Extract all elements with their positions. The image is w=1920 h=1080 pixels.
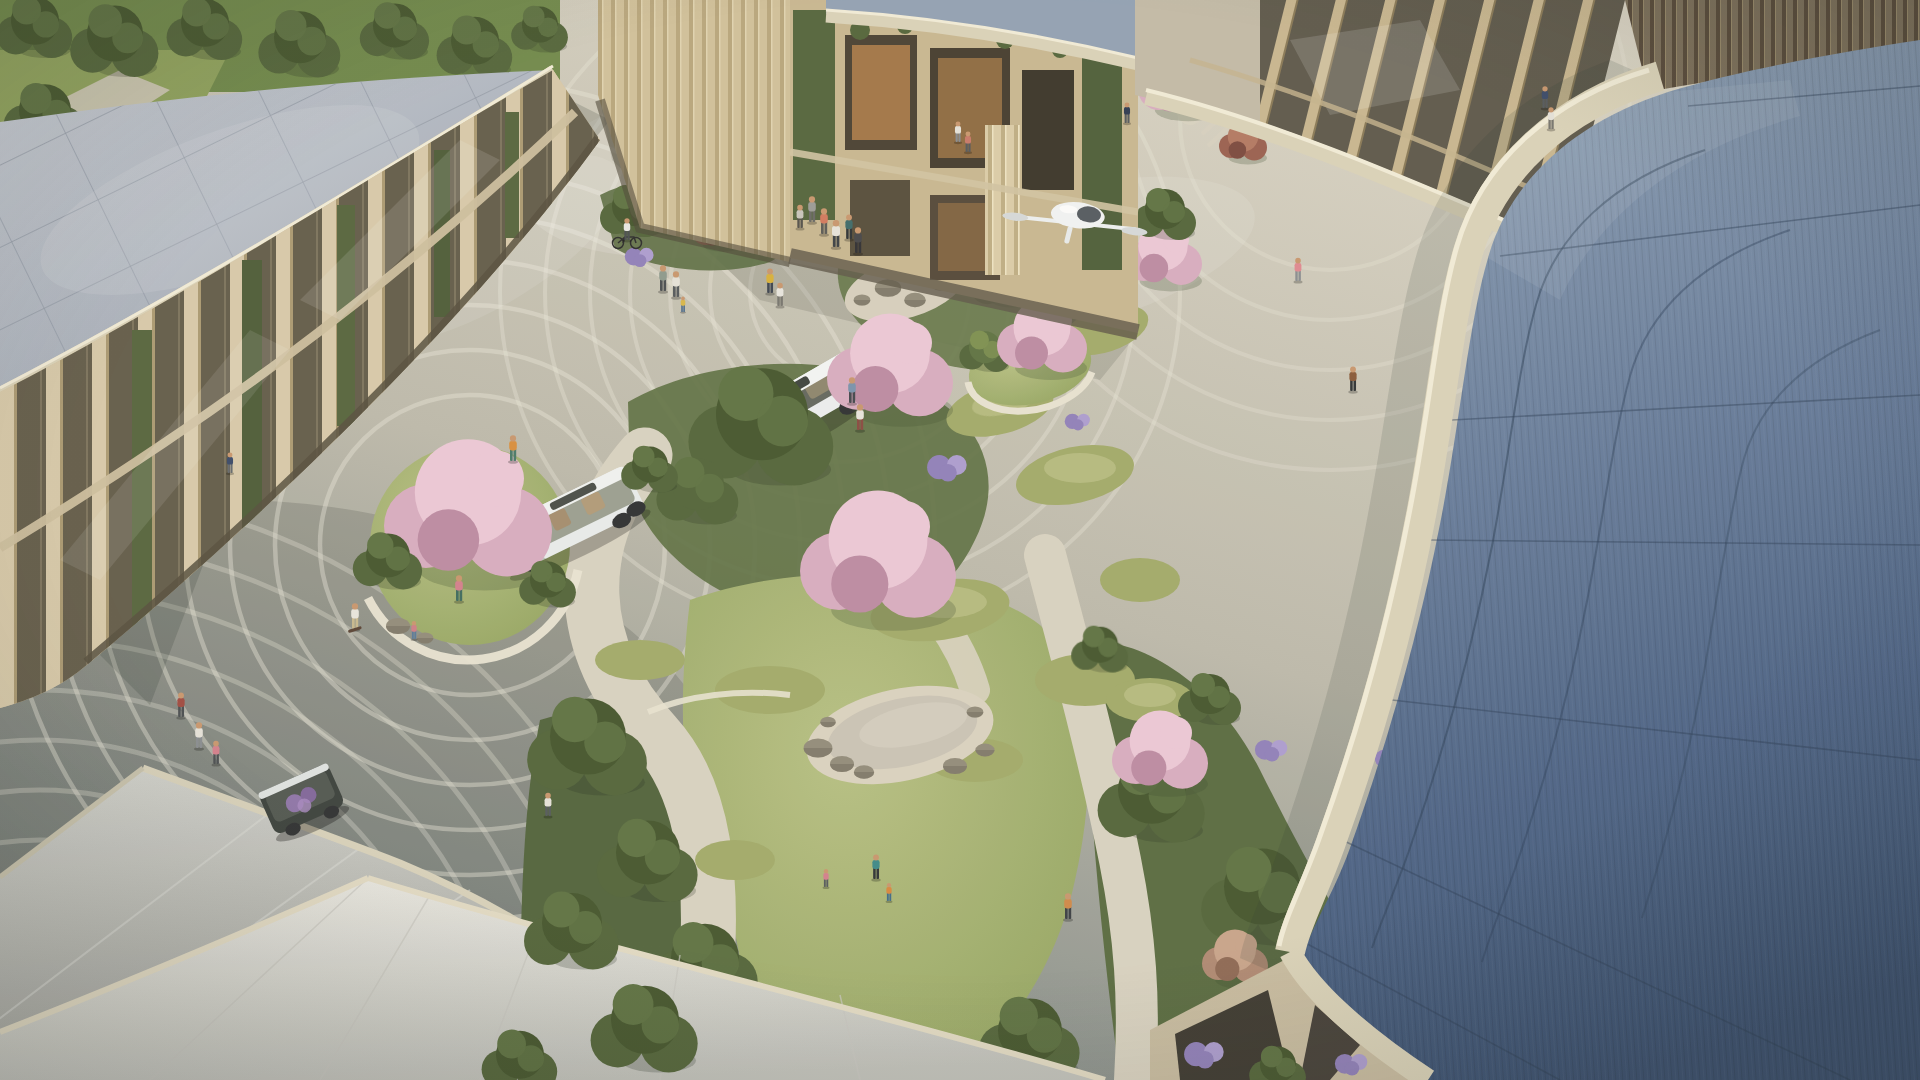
aerial-render-scene: [0, 0, 1920, 1080]
scene-canvas: [0, 0, 1920, 1080]
vignette: [0, 0, 1920, 1080]
